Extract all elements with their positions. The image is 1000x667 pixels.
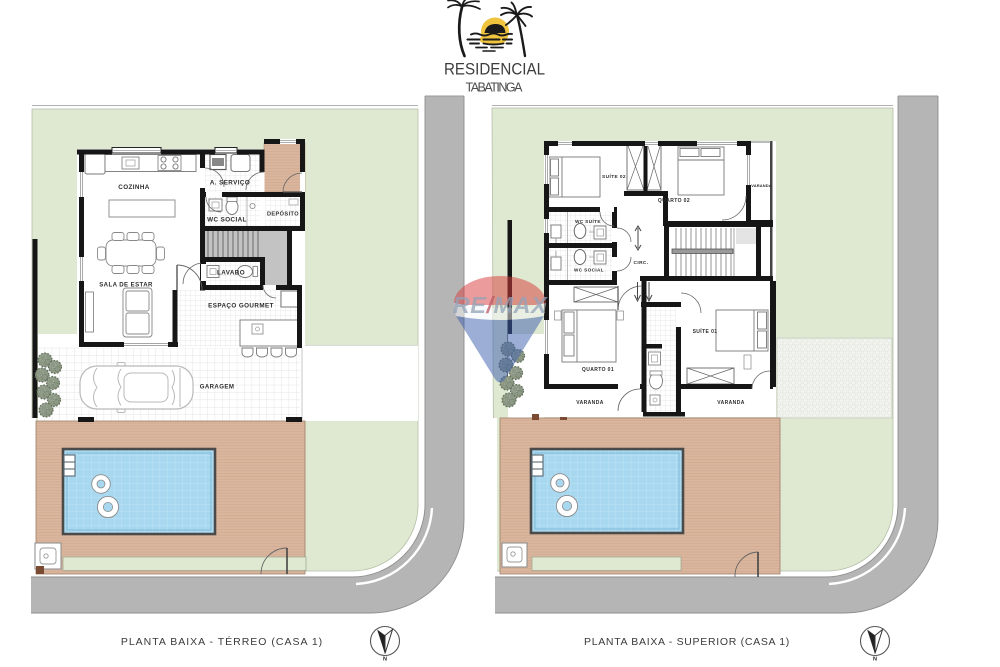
svg-text:A. SERVIÇO: A. SERVIÇO [210,180,250,187]
svg-text:QUARTO 01: QUARTO 01 [582,367,614,373]
svg-text:N: N [873,657,877,663]
svg-text:SALA DE ESTAR: SALA DE ESTAR [99,282,153,289]
svg-text:ESPAÇO GOURMET: ESPAÇO GOURMET [208,303,274,310]
svg-text:PLANTA BAIXA - TÉRREO (CAS: PLANTA BAIXA - TÉRREO (CASA 1) [121,635,323,648]
svg-text:N: N [383,657,387,663]
svg-text:PLANTA BAIXA - SUPERIOR (C: PLANTA BAIXA - SUPERIOR (CASA 1) [584,636,790,648]
svg-text:RE/MAX: RE/MAX [453,292,548,318]
svg-text:VARANDA: VARANDA [717,400,744,406]
svg-text:VARANDA: VARANDA [576,400,603,406]
svg-text:CIRC.: CIRC. [633,260,648,266]
svg-text:VARANDA: VARANDA [751,183,771,188]
svg-text:GARAGEM: GARAGEM [200,384,235,391]
svg-text:LAVABO: LAVABO [217,270,245,277]
svg-text:WC SOCIAL: WC SOCIAL [207,217,247,224]
svg-text:QUARTO 02: QUARTO 02 [658,198,690,204]
svg-text:RESIDENCIAL: RESIDENCIAL [444,60,545,79]
svg-text:SUÍTE 01: SUÍTE 01 [693,327,718,335]
svg-text:TABATINGA: TABATINGA [466,81,524,95]
svg-text:DEPÓSITO: DEPÓSITO [267,210,299,218]
svg-text:WC SOCIAL: WC SOCIAL [574,268,604,273]
svg-text:COZINHA: COZINHA [118,184,150,191]
svg-text:WC SUÍTE: WC SUÍTE [575,217,601,224]
